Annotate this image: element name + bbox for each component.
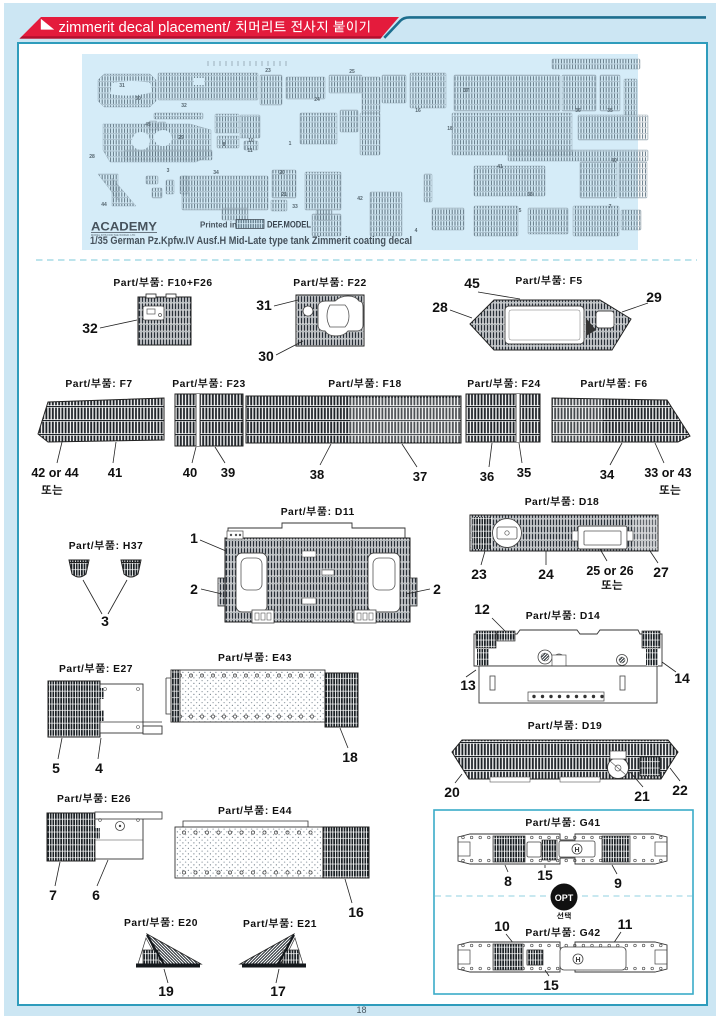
svg-text:Part/: Part/ [467,379,492,390]
svg-text:22: 22 [672,782,688,798]
svg-text:28: 28 [432,299,448,315]
svg-text:34: 34 [600,467,615,482]
svg-text:: D19: : D19 [575,721,603,732]
svg-text:21: 21 [634,788,650,804]
svg-text:27: 27 [653,564,669,580]
svg-text:Part/: Part/ [243,919,268,930]
svg-text:41: 41 [108,465,122,480]
svg-text:8: 8 [223,142,226,148]
svg-text:40: 40 [611,158,617,164]
svg-text:4: 4 [415,228,418,234]
svg-text:Part/: Part/ [328,379,353,390]
svg-text:: F18: : F18 [375,379,402,390]
svg-text:Part/: Part/ [59,664,84,675]
svg-text:31: 31 [256,297,272,313]
svg-text:35: 35 [517,465,531,480]
svg-text:11: 11 [618,916,633,932]
svg-text:29: 29 [646,289,662,305]
svg-text:25: 25 [349,69,355,75]
svg-text:36: 36 [575,108,581,114]
svg-text:Part/: Part/ [281,507,306,518]
svg-text:29: 29 [178,135,184,141]
svg-text:Part/: Part/ [293,278,318,289]
svg-text:16: 16 [415,108,421,114]
svg-text:2: 2 [433,581,441,597]
svg-text:H: H [575,957,580,964]
svg-text:35: 35 [607,108,613,114]
svg-text:Part/: Part/ [69,541,94,552]
svg-text:: E44: : E44 [265,806,292,817]
svg-text:24: 24 [314,97,320,103]
svg-text:30: 30 [135,96,141,102]
svg-text:H: H [574,847,579,854]
svg-text:37: 37 [413,469,427,484]
svg-text:: F6: : F6 [627,379,647,390]
svg-text:20: 20 [444,784,460,800]
svg-text:1: 1 [289,141,292,147]
svg-text:23: 23 [471,566,487,582]
svg-text:37: 37 [463,88,469,94]
svg-text:4: 4 [95,760,103,776]
svg-text:42 or 44: 42 or 44 [31,466,78,480]
svg-text:32: 32 [82,320,98,336]
svg-text:17: 17 [270,983,286,999]
svg-text:DEF.MODEL: DEF.MODEL [267,220,311,230]
svg-text:21: 21 [281,192,287,198]
svg-text:10: 10 [494,918,510,934]
svg-text:Part/: Part/ [65,379,90,390]
svg-text:23: 23 [265,68,271,74]
svg-text:: E21: : E21 [290,919,317,930]
svg-text:Part/: Part/ [218,806,243,817]
svg-text:ACADEMY: ACADEMY [91,220,157,234]
svg-text:: D14: : D14 [573,611,601,622]
svg-text:: D18: : D18 [572,497,600,508]
svg-text:5: 5 [519,208,522,214]
svg-text:: F24: : F24 [514,379,541,390]
svg-text:31: 31 [119,83,125,89]
svg-text:Part/: Part/ [57,794,82,805]
svg-text:: G42: : G42 [572,928,600,939]
svg-text:12: 12 [474,601,490,617]
svg-text:8: 8 [504,873,512,889]
svg-text:Part/: Part/ [113,278,138,289]
svg-text:33: 33 [527,192,533,198]
svg-text:Part/: Part/ [172,379,197,390]
svg-text:42: 42 [357,196,363,202]
svg-text:: E27: : E27 [106,664,133,675]
svg-text:: H37: : H37 [116,541,144,552]
svg-text:6: 6 [92,887,100,903]
svg-text:Part/: Part/ [580,379,605,390]
svg-text:45: 45 [145,122,151,128]
svg-text:1: 1 [190,530,198,546]
svg-text:44: 44 [101,202,107,208]
svg-text:OPT: OPT [555,893,574,903]
svg-text:18: 18 [342,749,358,765]
svg-text:10: 10 [248,138,254,144]
svg-text:40: 40 [183,465,197,480]
svg-text:Printed in: Printed in [200,221,237,230]
svg-text:38: 38 [310,467,324,482]
svg-text:: E43: : E43 [265,653,292,664]
svg-text:39: 39 [221,465,235,480]
svg-text:32: 32 [181,103,187,109]
svg-text:36: 36 [480,469,494,484]
svg-text:15: 15 [543,977,559,993]
svg-text:Part/: Part/ [218,653,243,664]
svg-text:19: 19 [158,983,174,999]
svg-text:11: 11 [247,148,253,154]
svg-text:Part/: Part/ [526,611,551,622]
svg-text:3: 3 [101,613,109,629]
svg-text:Part/: Part/ [525,497,550,508]
svg-text:Part/: Part/ [124,918,149,929]
svg-text:15: 15 [537,867,553,883]
svg-text:33: 33 [292,204,298,210]
svg-text:33 or 43: 33 or 43 [644,466,691,480]
svg-text:Part/: Part/ [515,276,540,287]
svg-text:: F23: : F23 [219,379,246,390]
svg-text:Part/: Part/ [525,818,550,829]
svg-text:3: 3 [167,168,170,174]
svg-text:45: 45 [464,275,480,291]
svg-text:Part/: Part/ [525,928,550,939]
svg-text:25 or 26: 25 or 26 [586,564,633,578]
svg-text:34: 34 [213,170,219,176]
svg-text:20: 20 [279,170,285,176]
svg-text:14: 14 [674,670,690,686]
svg-text:2: 2 [190,581,198,597]
svg-text:5: 5 [52,760,60,776]
svg-text:18: 18 [447,126,453,132]
svg-text:zimmerit decal placement/: zimmerit decal placement/ [59,20,232,36]
svg-text:41: 41 [497,164,503,170]
svg-text:13: 13 [460,677,476,693]
svg-text:28: 28 [89,154,95,160]
svg-text:9: 9 [614,875,622,891]
svg-text:: F10+F26: : F10+F26 [160,278,212,289]
svg-text:1/35 German Pz.Kpfw.IV Ausf.H: 1/35 German Pz.Kpfw.IV Ausf.H Mid-Late t… [90,235,412,247]
svg-text:30: 30 [258,348,274,364]
svg-text:Part/: Part/ [528,721,553,732]
svg-text:7: 7 [609,204,612,210]
svg-text:: F5: : F5 [562,276,582,287]
svg-text:16: 16 [348,904,364,920]
svg-text:: G41: : G41 [572,818,600,829]
svg-text:: F7: : F7 [112,379,132,390]
svg-text:: F22: : F22 [340,278,367,289]
svg-text:: E26: : E26 [104,794,131,805]
svg-text:7: 7 [49,887,57,903]
svg-text:: E20: : E20 [171,918,198,929]
svg-text:24: 24 [538,566,554,582]
svg-text:: D11: : D11 [328,507,355,518]
